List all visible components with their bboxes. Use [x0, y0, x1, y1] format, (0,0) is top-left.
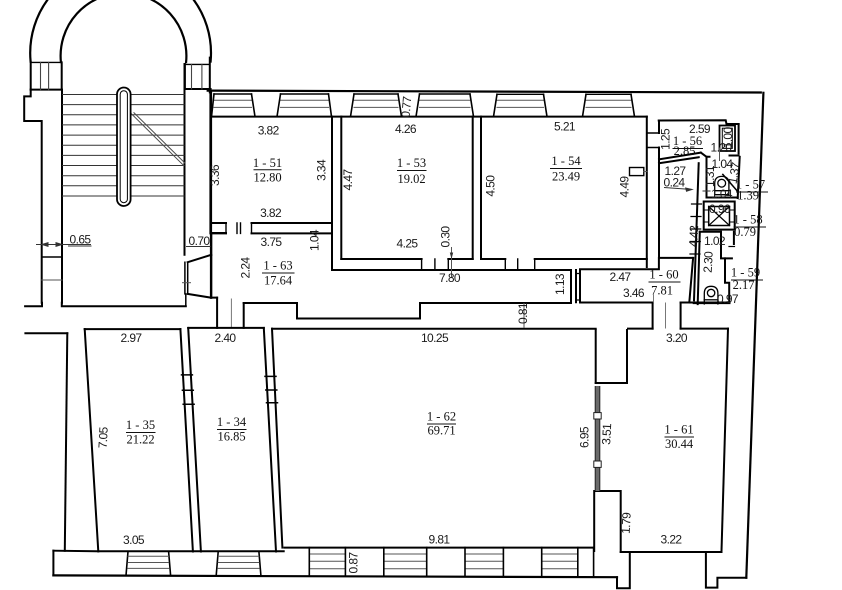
svg-text:2.30: 2.30	[701, 251, 716, 274]
svg-text:21.22: 21.22	[126, 433, 154, 447]
svg-text:4.42: 4.42	[686, 225, 701, 248]
svg-text:1 - 63: 1 - 63	[263, 259, 292, 273]
svg-text:3.75: 3.75	[261, 235, 283, 249]
svg-text:1 - 61: 1 - 61	[664, 423, 693, 437]
svg-text:3.82: 3.82	[260, 206, 282, 220]
svg-text:3.36: 3.36	[208, 164, 222, 186]
svg-text:12.80: 12.80	[253, 171, 281, 185]
svg-text:2.40: 2.40	[215, 331, 237, 345]
svg-text:0.30: 0.30	[439, 226, 453, 248]
svg-text:0.87: 0.87	[347, 552, 361, 574]
svg-text:69.71: 69.71	[427, 424, 455, 438]
svg-text:1 - 60: 1 - 60	[649, 268, 678, 282]
svg-text:7.05: 7.05	[96, 426, 111, 449]
svg-text:2.24: 2.24	[239, 257, 253, 279]
svg-text:2.47: 2.47	[610, 270, 632, 284]
svg-text:1 - 53: 1 - 53	[397, 156, 426, 170]
svg-text:30.44: 30.44	[665, 437, 694, 451]
svg-text:4.26: 4.26	[395, 122, 417, 136]
svg-text:1 - 62: 1 - 62	[427, 410, 456, 424]
svg-text:7.80: 7.80	[439, 271, 461, 285]
svg-text:4.47: 4.47	[341, 169, 355, 191]
svg-text:0.77: 0.77	[399, 95, 415, 118]
svg-text:1.31: 1.31	[703, 165, 717, 187]
svg-text:4.25: 4.25	[397, 237, 419, 251]
svg-text:1 - 34: 1 - 34	[217, 415, 247, 429]
svg-text:1.02: 1.02	[704, 234, 726, 248]
svg-text:1.04: 1.04	[711, 187, 733, 201]
svg-text:19.02: 19.02	[397, 172, 425, 186]
svg-text:0.96: 0.96	[709, 202, 731, 216]
svg-text:1 - 54: 1 - 54	[551, 154, 581, 168]
svg-text:0.24: 0.24	[664, 176, 686, 190]
svg-text:3.46: 3.46	[623, 286, 645, 300]
svg-text:4.49: 4.49	[618, 176, 632, 198]
svg-text:10.25: 10.25	[421, 331, 449, 345]
svg-text:5.21: 5.21	[554, 120, 576, 134]
svg-text:4.50: 4.50	[484, 175, 498, 197]
svg-text:23.49: 23.49	[552, 170, 580, 184]
svg-text:0.79: 0.79	[734, 225, 756, 239]
svg-text:7.81: 7.81	[651, 284, 673, 298]
svg-text:1.00: 1.00	[721, 127, 735, 149]
svg-text:1 - 35: 1 - 35	[126, 418, 155, 432]
svg-text:0.65: 0.65	[70, 233, 92, 247]
svg-text:1.79: 1.79	[619, 512, 634, 535]
svg-text:3.82: 3.82	[258, 124, 280, 138]
svg-text:3.51: 3.51	[599, 423, 614, 446]
svg-text:2.97: 2.97	[121, 331, 143, 345]
svg-text:3.34: 3.34	[314, 159, 328, 181]
svg-text:1 - 51: 1 - 51	[253, 156, 282, 170]
svg-text:0.81: 0.81	[516, 302, 530, 324]
svg-text:2.85: 2.85	[674, 144, 696, 158]
svg-text:0.97: 0.97	[717, 292, 739, 306]
svg-text:1.39: 1.39	[737, 189, 759, 203]
svg-text:2.17: 2.17	[733, 278, 755, 292]
svg-text:1.13: 1.13	[553, 273, 567, 295]
svg-text:0.70: 0.70	[189, 234, 211, 248]
svg-text:1.25: 1.25	[659, 128, 673, 150]
svg-text:3.22: 3.22	[661, 533, 683, 547]
svg-text:3.20: 3.20	[666, 331, 688, 345]
svg-text:9.81: 9.81	[429, 533, 451, 547]
svg-text:3.05: 3.05	[123, 533, 145, 547]
svg-text:1.04: 1.04	[308, 229, 322, 251]
svg-text:16.85: 16.85	[217, 430, 245, 444]
svg-text:6.95: 6.95	[578, 426, 592, 448]
svg-text:17.64: 17.64	[264, 274, 293, 288]
